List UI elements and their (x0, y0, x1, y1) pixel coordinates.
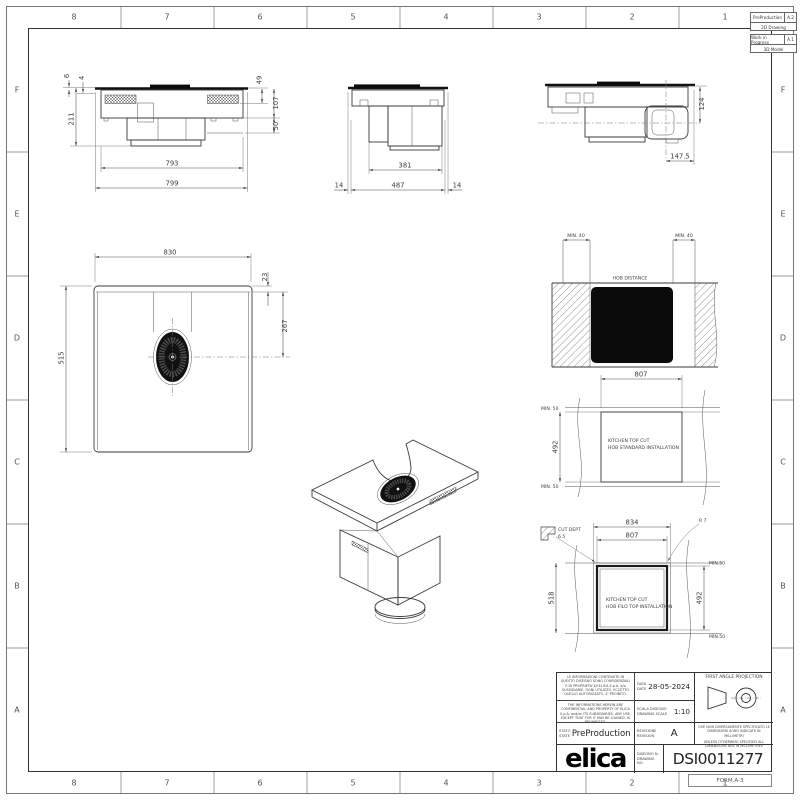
elica-logo: elica (565, 744, 626, 774)
confidential-note-en: THE INFORMATIONS HEREIN ARE CONFIDENTIAL… (557, 701, 635, 723)
drawing-sheet: 8 7 6 5 4 3 2 1 8 7 6 5 4 3 2 1 F E D C … (0, 0, 800, 800)
dim-min40-right: MIN. 40 (675, 233, 693, 239)
std-cut-label-1: KITCHEN TOP CUT (608, 438, 650, 444)
dim-807: 807 (635, 371, 648, 379)
dim-492-flush: 492 (696, 592, 704, 605)
view-flush-cut: 834 807 CUT DEPT 6.5 R 7 518 492 MIN.50 … (541, 518, 725, 658)
dim-518: 518 (548, 592, 556, 605)
dim-min50-bottom: MIN. 50 (541, 484, 559, 490)
cut-depth-value: 6.5 (558, 534, 565, 540)
dim-23: 23 (261, 273, 269, 282)
dim-381: 381 (399, 162, 412, 170)
projection-label: FIRST ANGLE PROJECTION (695, 675, 773, 680)
date-label-it: DATA (637, 682, 646, 687)
dim-glass-thickness: 6 (63, 74, 71, 78)
date-label-en: DATE (637, 687, 646, 692)
flush-cut-label-1: KITCHEN TOP CUT (606, 597, 648, 603)
extractor-inlet (150, 85, 190, 88)
scale-label-it: SCALA DISEGNO (637, 707, 667, 712)
vent-grille-right (208, 95, 239, 104)
drawing-number: DSI0011277 (673, 750, 763, 768)
dim-124: 124 (698, 98, 706, 111)
flush-cut-label-2: HOB FILO TOP INSTALLATION (606, 604, 672, 610)
view-front-section: 6 4 211 49 107 50 793 799 (63, 74, 280, 192)
dim-min50-top-flush: MIN.50 (709, 561, 725, 567)
dim-147: 147.5 (670, 153, 689, 161)
hob-glass (591, 287, 673, 363)
dim-267: 267 (281, 320, 289, 333)
dim-487: 487 (392, 182, 405, 190)
revision-label-it: REVISIONE (637, 729, 656, 734)
revision-cell: REVISIONE REVISION A (635, 723, 695, 745)
title-block: LE INFORMAZIONI CONTENUTE IN QUESTO DISE… (556, 672, 772, 772)
drawing-no-labels: DISEGNO N. DRAWING NO. (635, 745, 663, 773)
drawing-no-label-en: DRAWING NO. (637, 757, 661, 766)
cut-depth-label: CUT DEPT (558, 527, 581, 533)
state-label-it: STATO (559, 729, 570, 734)
scale-label-en: DRAWING SCALE (637, 712, 667, 717)
confidential-note-it: LE INFORMAZIONI CONTENUTE IN QUESTO DISE… (557, 673, 635, 701)
view-hob-distance: MIN. 40 MIN. 40 HOB DISTANCE (552, 233, 718, 367)
form-label: FORM.A-3 (688, 774, 772, 787)
dim-min50-bottom-flush: MIN.50 (709, 634, 725, 640)
dim-bevel: 4 (78, 76, 86, 80)
dim-830: 830 (164, 249, 177, 257)
view-standard-cut: 807 MIN. 50 MIN. 50 492 KITCHEN TOP CUT … (541, 371, 720, 506)
scale-value: 1:10 (667, 707, 692, 716)
dim-body-width: 793 (166, 160, 179, 168)
state-value: PreProduction (570, 729, 632, 739)
dim-height: 211 (68, 113, 76, 126)
drawing-no-cell: DSI0011277 (663, 745, 773, 773)
view-isometric (312, 440, 478, 624)
state-label-en: STATE (559, 734, 570, 739)
dim-834: 834 (626, 519, 639, 527)
view-side-section: 381 487 14 14 (334, 84, 462, 194)
scale-cell: SCALA DISEGNO DRAWING SCALE 1:10 (635, 701, 695, 723)
state-cell: STATO STATE PreProduction (557, 723, 635, 745)
revision-value: A (656, 728, 692, 739)
vent-grille-left (105, 95, 136, 104)
radius-label: R 7 (699, 518, 707, 524)
blower-unit (645, 106, 688, 139)
dim-807-flush: 807 (626, 532, 639, 540)
first-angle-projection-icon (698, 683, 770, 713)
dim-min40-left: MIN. 40 (567, 233, 585, 239)
units-note-en: UNLESS OTHERWISE SPECIFIED ALL DIMENSION… (698, 740, 770, 749)
dim-107: 107 (272, 97, 280, 110)
dim-glass-width: 799 (166, 180, 179, 188)
hob-distance-label: HOB DISTANCE (613, 276, 648, 282)
dim-14-left: 14 (335, 182, 344, 190)
dim-min50-top: MIN. 50 (541, 406, 559, 412)
std-cut-label-2: HOB STANDARD INSTALLATION (608, 445, 679, 451)
dim-515: 515 (58, 352, 66, 365)
logo-cell: elica (557, 745, 635, 773)
dim-492: 492 (552, 441, 560, 454)
view-end-section: 124 147.5 (538, 80, 707, 165)
date-cell: DATA DATE 28-05-2024 (635, 673, 695, 701)
drawing-no-label-it: DISEGNO N. (637, 752, 661, 757)
projection-cell: FIRST ANGLE PROJECTION (695, 673, 773, 723)
dim-49: 49 (256, 76, 264, 85)
dim-50: 50 (272, 122, 280, 131)
date-value: 28-05-2024 (646, 682, 692, 691)
view-plan: 830 23 267 515 (58, 249, 291, 453)
cut-depth-profile (541, 527, 555, 540)
revision-label-en: REVISION (637, 734, 656, 739)
dim-14-right: 14 (453, 182, 462, 190)
units-note-it: OVE NON DIVERSAMENTE SPECIFICATO LE DIME… (698, 725, 770, 738)
